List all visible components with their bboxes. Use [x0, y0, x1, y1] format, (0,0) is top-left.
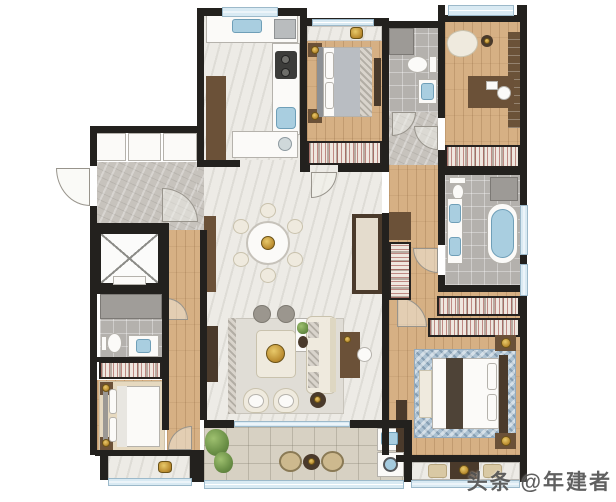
bedroom3-wardrobe	[99, 361, 162, 379]
dining-chair-4	[260, 268, 276, 283]
bedroom2-throw	[360, 48, 372, 116]
window-master-bedroom	[520, 264, 528, 296]
watermark: 头条 @年建者	[467, 466, 612, 496]
balcony-chair-b	[321, 451, 344, 472]
tv-console	[207, 326, 218, 382]
wall-foyer-top	[90, 126, 200, 133]
master-closet-row-a	[437, 296, 520, 316]
wall-study-right	[520, 15, 527, 175]
pouf-b	[277, 305, 295, 323]
peninsula-sink	[278, 137, 292, 151]
living-desk-lamp	[344, 336, 351, 343]
west-corridor-floor	[167, 230, 200, 455]
wall-guestbath-bottom	[97, 357, 165, 362]
bedroom3-headboard	[103, 387, 108, 445]
wall-masterbath-corridor-a	[438, 175, 445, 245]
wall-kitchen-bottom	[204, 160, 240, 167]
wall-bedroom3-right	[162, 360, 169, 430]
balcony-chair-a	[279, 451, 302, 472]
study-side-decor	[484, 38, 490, 44]
dining-chair-6	[233, 219, 249, 234]
wall-balcony-stub-a	[204, 420, 234, 428]
wall-study-bottom	[438, 168, 527, 175]
living-desk-chair	[357, 347, 372, 362]
guest-bath-shower	[100, 294, 162, 319]
bathroom2-sink	[421, 83, 434, 100]
display-cabinet	[352, 214, 382, 294]
master-bay-cushion-a	[428, 464, 447, 478]
master-pillow-a	[487, 363, 497, 390]
sofa-pillow-a	[308, 322, 319, 338]
bedroom3-pillow-a	[109, 389, 117, 414]
armchair-a-seat	[248, 394, 264, 408]
console-vase	[298, 336, 308, 348]
side-table-decor	[314, 396, 321, 403]
master-lamp-a	[501, 338, 511, 348]
master-headboard	[499, 355, 508, 433]
study-wardrobe	[445, 145, 520, 168]
master-toilet-tank	[449, 177, 466, 184]
master-sink-a	[449, 204, 461, 223]
bedroom2-blanket	[334, 48, 360, 116]
bedroom3-bay-decor	[158, 461, 172, 473]
window-balcony-slider	[234, 421, 350, 427]
kitchen-tall-cabinet	[206, 76, 226, 160]
wall-bedroom3-bottom	[95, 450, 195, 456]
bedroom2-wardrobe	[307, 141, 382, 165]
sofa-pillow-c	[308, 372, 319, 388]
dining-chair-2	[287, 219, 303, 234]
master-lamp-b	[501, 436, 511, 446]
wall-bay3-stub-left	[100, 456, 108, 480]
dining-chair-5	[233, 252, 249, 267]
window-master-bath	[520, 205, 528, 255]
bedroom2-lamp-a	[311, 46, 319, 54]
wall-bath2-top	[382, 21, 445, 28]
wall-kitchen-left	[197, 8, 204, 167]
guest-sink	[136, 339, 151, 353]
bedroom2-lamp-b	[311, 112, 319, 120]
armchair-b-seat	[278, 394, 294, 408]
bedroom2-pillow-a	[325, 52, 334, 79]
wall-balcony-left	[195, 450, 204, 482]
living-rug-fringe	[228, 318, 236, 414]
kitchen-appliance	[274, 19, 296, 39]
sofa-back	[330, 318, 336, 392]
stove-burner-a	[281, 55, 290, 64]
wall-foyer-elevator	[90, 223, 162, 230]
window-bedroom3-bay	[108, 478, 192, 486]
kitchen-sink-2	[276, 107, 296, 129]
wall-east-b	[520, 255, 527, 264]
window-study	[448, 5, 514, 16]
sofa-pillow-b	[308, 350, 319, 366]
bathroom2-toilet-bowl	[407, 56, 428, 73]
study-chair	[497, 86, 511, 100]
closet-upper-cabinet	[389, 212, 411, 240]
bedroom3-pillow-b	[109, 417, 117, 442]
wall-balcony-right	[404, 420, 412, 482]
floorplan-image: 头条 @年建者	[0, 0, 616, 502]
master-sink-b	[449, 237, 461, 256]
wall-guestbath-right	[162, 294, 169, 360]
wall-corridor-living	[200, 230, 207, 420]
kitchen-sink	[232, 19, 262, 33]
balcony-table-decor	[308, 458, 315, 465]
wall-foyer-left-lower	[90, 206, 97, 293]
study-laptop	[486, 81, 498, 90]
wall-kitchen-bedroom2	[300, 8, 307, 167]
bedroom2-star-decor	[350, 27, 363, 39]
entry-door-arc	[56, 168, 90, 206]
dining-centerpiece	[261, 236, 275, 250]
master-bed-runner	[446, 358, 463, 429]
wall-study-top	[438, 15, 527, 22]
wall-bath2-study-a	[438, 15, 445, 118]
dining-chair-3	[287, 252, 303, 267]
window-balcony	[204, 480, 404, 489]
bathroom2-toilet-tank	[429, 56, 437, 73]
entry-cabinet-a	[93, 133, 126, 161]
master-bench	[419, 370, 432, 418]
wall-elevator-right	[162, 223, 169, 290]
wall-foyer-left-upper	[90, 126, 97, 166]
dining-chair-1	[260, 203, 276, 218]
bedroom2-bay-sill	[307, 26, 382, 41]
wall-master-bottom	[396, 455, 527, 462]
wall-bedroom2-bottom-a	[300, 165, 310, 172]
master-bath-shower	[490, 177, 518, 201]
master-pillow-b	[487, 394, 497, 421]
entry-cabinet-c	[163, 133, 197, 161]
closet-wardrobe-column	[389, 242, 411, 300]
wall-east-a	[520, 175, 527, 205]
pouf-a	[253, 305, 271, 323]
foyer-opening-floor	[197, 167, 204, 230]
wall-bedroom2-bottom-b	[338, 165, 389, 172]
balcony-floor	[204, 425, 404, 482]
wall-elevator-bottom	[90, 287, 169, 294]
guest-toilet-bowl	[107, 333, 122, 353]
bedroom3-blanket-fold	[117, 386, 127, 447]
bedroom3-bay-sill	[108, 455, 190, 479]
bathroom2-shower	[389, 28, 414, 55]
wall-masterbath-bottom	[438, 285, 527, 292]
window-kitchen	[222, 7, 278, 17]
bedroom2-pillow-b	[325, 82, 334, 109]
elevator-door	[113, 276, 146, 285]
wall-west-left	[90, 293, 97, 455]
balcony-plant-b	[214, 452, 233, 473]
coffee-tray	[266, 344, 285, 363]
wall-bedroom2-bath2	[382, 21, 389, 172]
stove-burner-b	[281, 68, 290, 77]
bathtub-water	[491, 209, 514, 258]
window-bedroom2	[312, 19, 374, 26]
entry-cabinet-b	[128, 133, 161, 161]
wall-east-c	[520, 296, 527, 462]
wall-living-master	[382, 213, 389, 455]
bedroom2-dresser	[374, 58, 381, 106]
wall-balcony-stub-b	[350, 420, 404, 428]
watermark-text: 头条 @年建者	[467, 471, 612, 494]
